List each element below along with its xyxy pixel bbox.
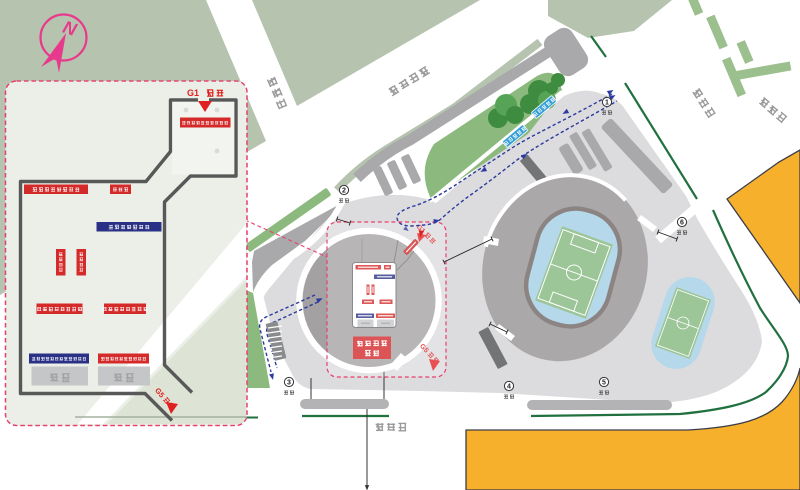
svg-text:5: 5 <box>602 380 606 387</box>
svg-text:6: 6 <box>680 220 684 227</box>
svg-text:G1: G1 <box>187 88 199 98</box>
svg-text:1: 1 <box>605 100 609 107</box>
svg-text:4: 4 <box>507 384 511 391</box>
svg-text:2: 2 <box>342 188 346 195</box>
svg-text:3: 3 <box>287 380 291 387</box>
